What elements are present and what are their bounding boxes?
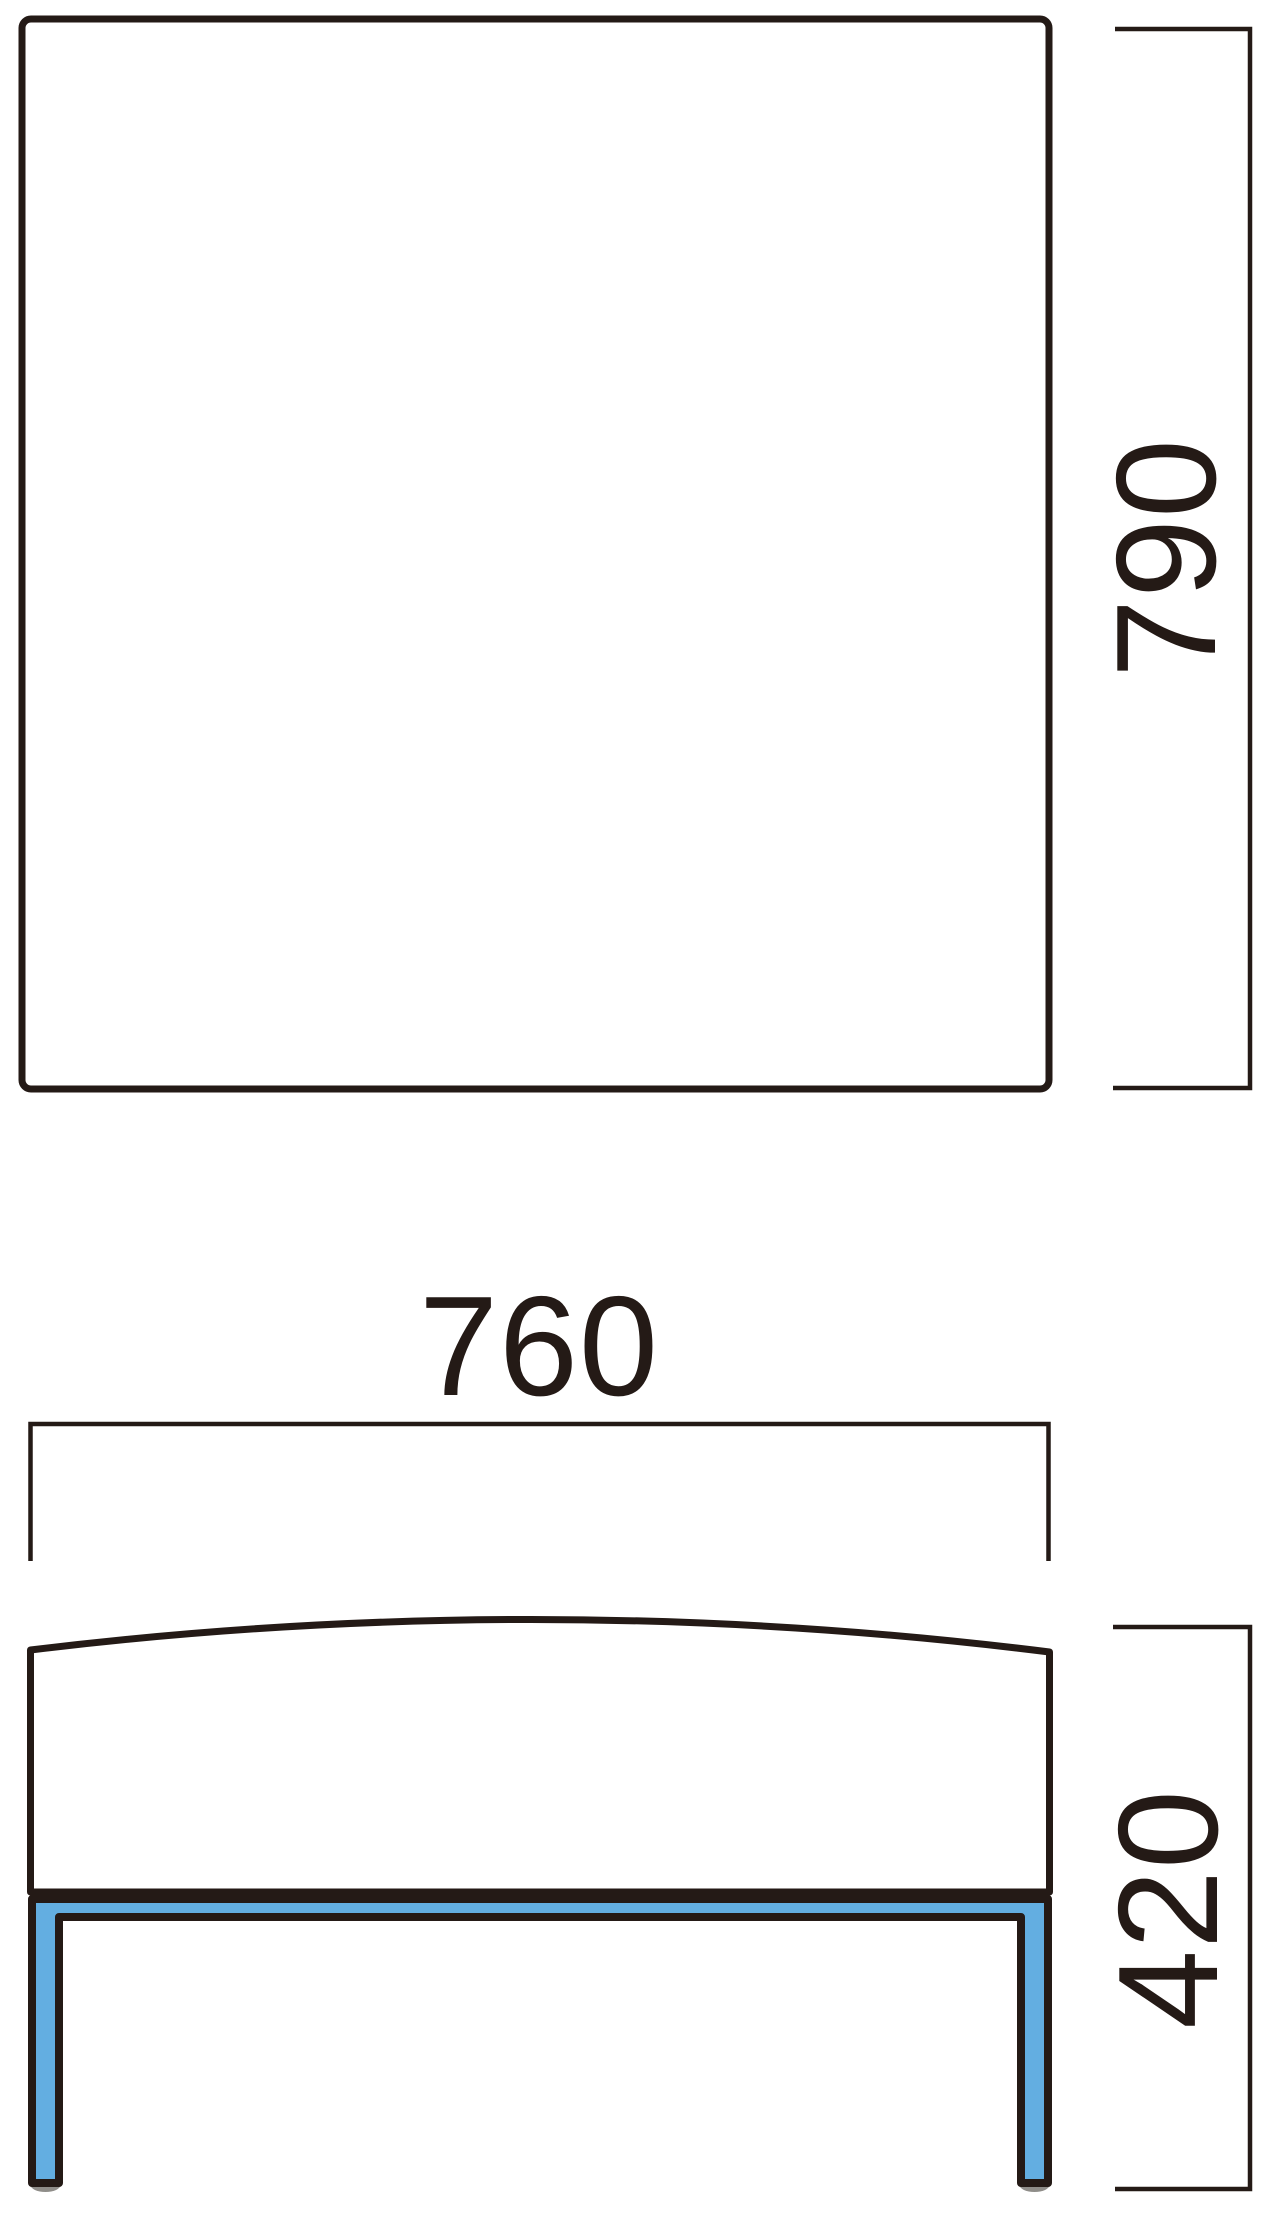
dimension-drawing-canvas: 790 760 420: [0, 0, 1280, 2220]
width-dimension-label: 760: [419, 1267, 659, 1426]
front-view-seat: [31, 1619, 1050, 1892]
height-dimension-label: 420: [1089, 1789, 1248, 2029]
top-view-panel: [22, 19, 1049, 1089]
leg-frame: [32, 1899, 1048, 2183]
width-dimension-bracket: [31, 1424, 1049, 1561]
furniture-dimension-diagram: 790 760 420: [0, 0, 1280, 2220]
depth-dimension-label: 790: [1087, 438, 1246, 678]
